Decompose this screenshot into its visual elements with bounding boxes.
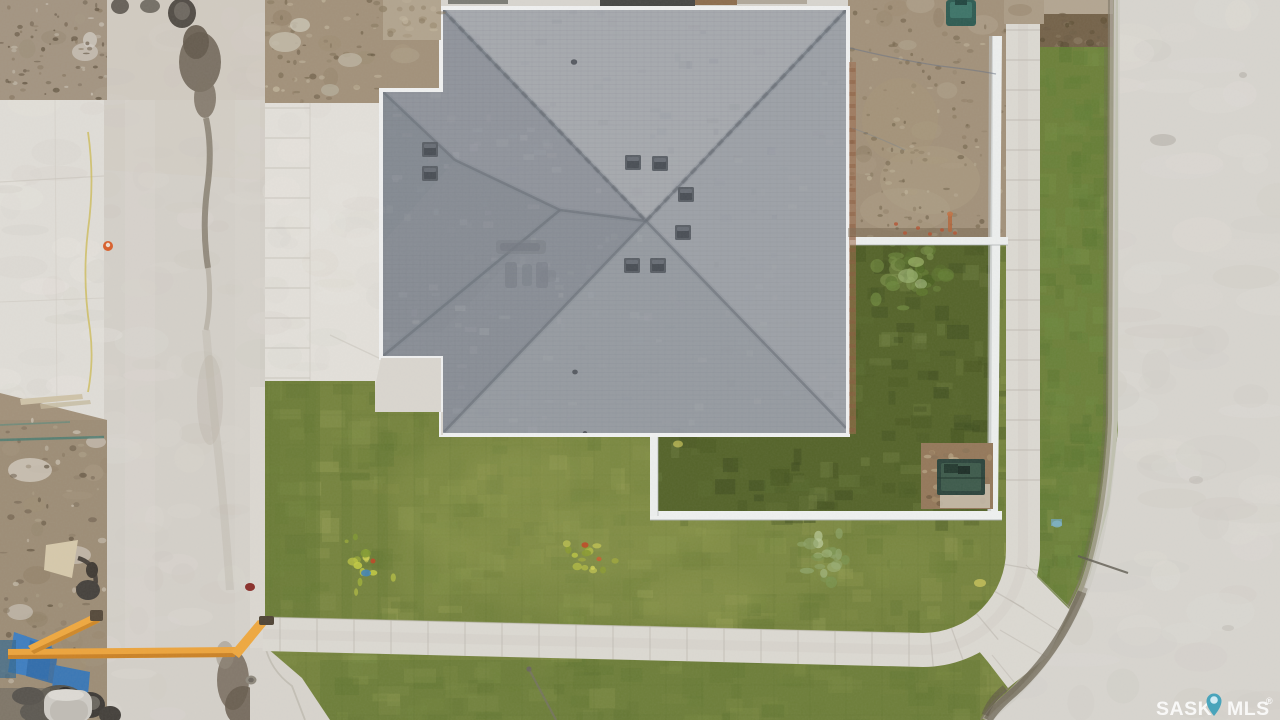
svg-text:®: ® — [1266, 696, 1273, 706]
svg-text:MLS: MLS — [1227, 698, 1270, 720]
svg-text:SASK: SASK — [1156, 698, 1212, 720]
